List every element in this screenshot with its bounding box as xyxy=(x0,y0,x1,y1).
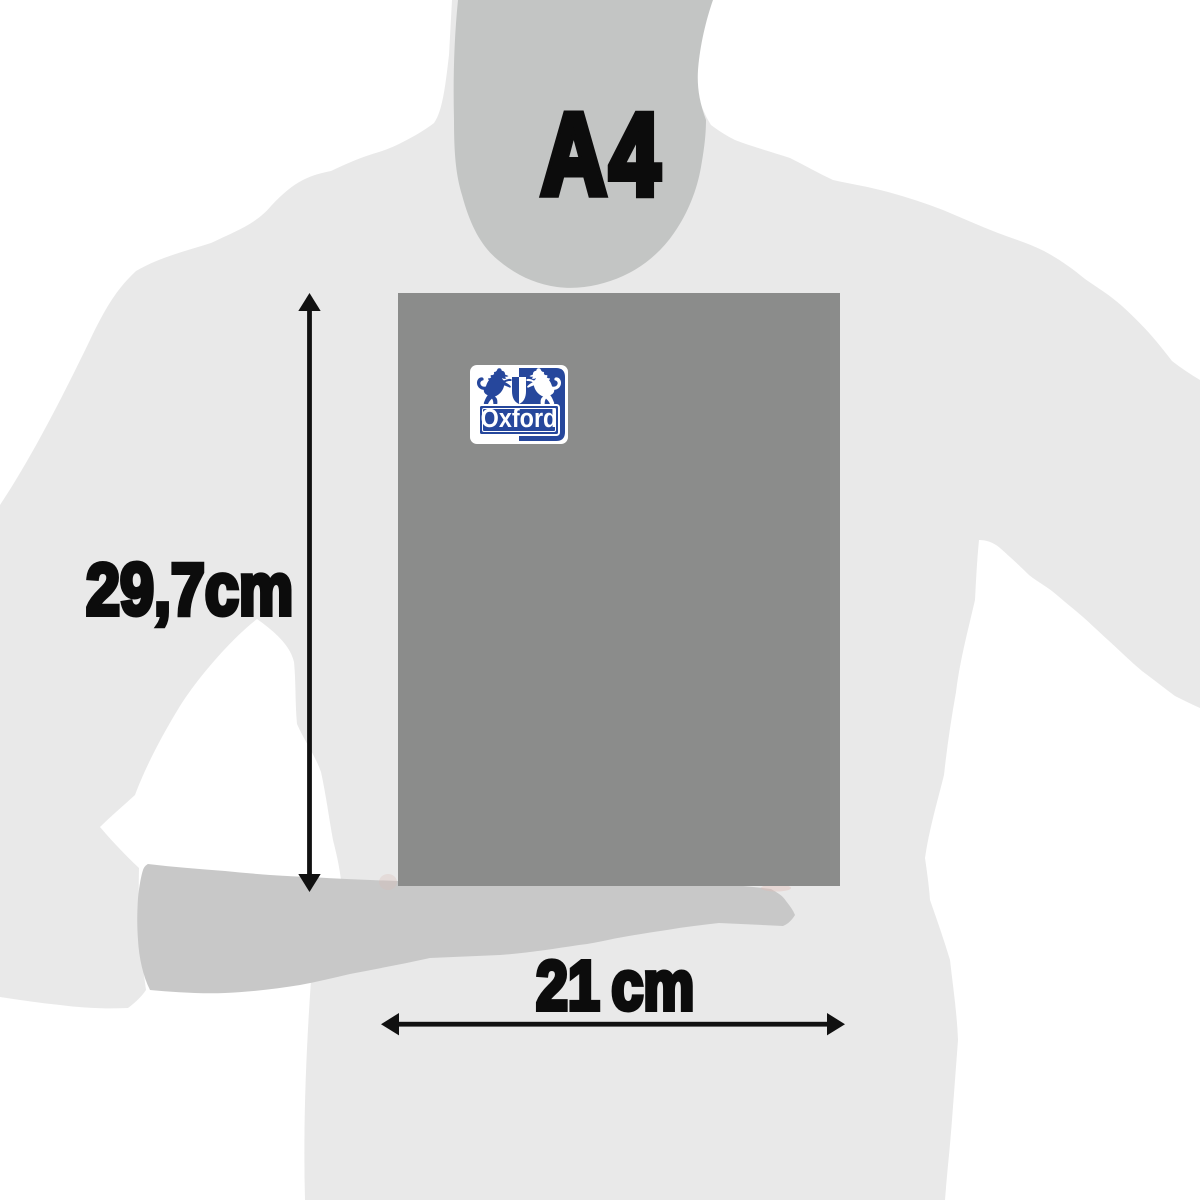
svg-text:29,7cm: 29,7cm xyxy=(86,549,293,630)
svg-text:A4: A4 xyxy=(541,89,663,218)
svg-text:21 cm: 21 cm xyxy=(536,946,694,1025)
svg-text:Oxford: Oxford xyxy=(481,405,558,433)
